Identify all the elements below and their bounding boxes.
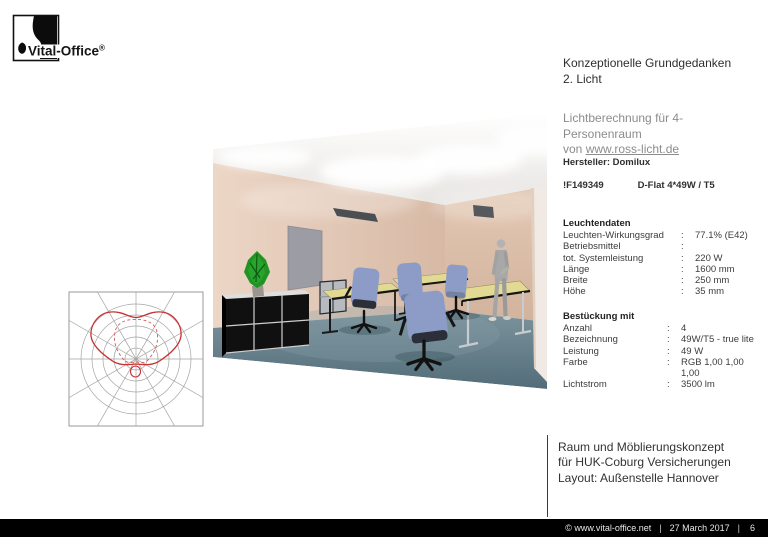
bar-separator: | <box>659 519 661 537</box>
spec-label: Farbe <box>563 357 667 368</box>
spec-value <box>695 241 768 252</box>
spec-colon: : <box>667 379 681 390</box>
ross-licht-link[interactable]: www.ross-licht.de <box>586 142 679 156</box>
spec-label: Länge <box>563 264 681 275</box>
table-row: tot. Systemleistung:220 W <box>563 253 768 264</box>
spec-label: Betriebsmittel <box>563 241 681 252</box>
page-title: Konzeptionelle Grundgedanken 2. Licht <box>563 56 758 87</box>
page-number: 6 <box>750 519 755 537</box>
product-info: Hersteller: Domilux !F149349 D-Flat 4*49… <box>563 157 763 191</box>
subtitle-line-1: Lichtberechnung für 4-Personenraum <box>563 111 758 142</box>
logo-wordmark: Vital-Office® <box>28 44 105 59</box>
spec-colon: : <box>667 334 681 345</box>
spec-colon: : <box>681 230 695 241</box>
spec-label <box>563 368 667 379</box>
table-row: 1,00 <box>563 368 768 379</box>
office-chair <box>444 264 468 299</box>
bottom-bar: © www.vital-office.net|27 March 2017|6 <box>0 519 768 537</box>
spec-label: Breite <box>563 275 681 286</box>
spec-colon: : <box>681 264 695 275</box>
spec-colon: : <box>667 346 681 357</box>
slide-page: Vital-Office® Konzeptionelle Grundgedank… <box>0 0 768 543</box>
title-line-1: Konzeptionelle Grundgedanken <box>563 56 758 72</box>
spec-value: 250 mm <box>695 275 768 286</box>
table-row: Leistung:49 W <box>563 346 768 357</box>
spec-colon: : <box>667 357 681 368</box>
table-row: Betriebsmittel: <box>563 241 768 252</box>
date-text: 27 March 2017 <box>670 523 730 533</box>
table-row: Breite:250 mm <box>563 275 768 286</box>
table-row: Lichtstrom:3500 lm <box>563 379 768 390</box>
logo-graphic: Vital-Office® <box>12 14 182 68</box>
polar-diagram <box>68 291 204 427</box>
wall-light-wash <box>240 182 420 218</box>
spec-label: Bezeichnung <box>563 334 667 345</box>
project-footer: Raum und Möblierungskonzept für HUK-Cobu… <box>558 440 758 486</box>
table-row: Bezeichnung:49W/T5 - true lite <box>563 334 768 345</box>
subtitle-line-2: von www.ross-licht.de <box>563 142 758 158</box>
footer-line-2: für HUK-Coburg Versicherungen <box>558 455 758 470</box>
spec-value: 3500 lm <box>681 379 768 390</box>
spec-value: RGB 1,00 1,00 <box>681 357 768 368</box>
table-row: Farbe:RGB 1,00 1,00 <box>563 357 768 368</box>
spec-colon: : <box>667 323 681 334</box>
spec-label: Anzahl <box>563 323 667 334</box>
title-line-2: 2. Licht <box>563 72 758 88</box>
spec-label: Leistung <box>563 346 667 357</box>
footer-line-1: Raum und Möblierungskonzept <box>558 440 758 455</box>
spec-colon: : <box>681 286 695 297</box>
spec-label: Lichtstrom <box>563 379 667 390</box>
spec-colon: : <box>681 275 695 286</box>
equipment-table: Bestückung mit Anzahl:4 Bezeichnung:49W/… <box>563 311 768 390</box>
spec-value: 4 <box>681 323 768 334</box>
product-code: !F149349 <box>563 180 635 191</box>
room-rendering <box>210 110 550 395</box>
section-heading: Leuchtendaten <box>563 218 768 229</box>
luminaire-data-table: Leuchtendaten Leuchten-Wirkungsgrad:77.1… <box>563 218 768 297</box>
footer-line-3: Layout: Außenstelle Hannover <box>558 471 758 486</box>
spec-colon <box>667 368 681 379</box>
spec-label: tot. Systemleistung <box>563 253 681 264</box>
spec-value: 35 mm <box>695 286 768 297</box>
spec-value: 1,00 <box>681 368 768 379</box>
spec-label: Leuchten-Wirkungsgrad <box>563 230 681 241</box>
manufacturer: Hersteller: Domilux <box>563 157 763 168</box>
wall-panel-right <box>473 205 494 218</box>
spec-label: Höhe <box>563 286 681 297</box>
spec-colon: : <box>681 253 695 264</box>
section-heading: Bestückung mit <box>563 311 768 322</box>
copyright-text: © www.vital-office.net <box>565 523 651 533</box>
product-line: !F149349 D-Flat 4*49W / T5 <box>563 180 763 191</box>
spec-value: 49 W <box>681 346 768 357</box>
spec-value: 77.1% (E42) <box>695 230 768 241</box>
vital-office-logo: Vital-Office® <box>12 14 182 68</box>
spec-value: 1600 mm <box>695 264 768 275</box>
subtitle: Lichtberechnung für 4-Personenraum von w… <box>563 111 758 158</box>
spec-value: 49W/T5 - true lite <box>681 334 768 345</box>
table-row: Leuchten-Wirkungsgrad:77.1% (E42) <box>563 230 768 241</box>
table-row: Länge:1600 mm <box>563 264 768 275</box>
table-row: Höhe:35 mm <box>563 286 768 297</box>
table-row: Anzahl:4 <box>563 323 768 334</box>
footer-divider <box>547 435 548 517</box>
door <box>288 226 322 290</box>
subtitle-prefix: von <box>563 142 586 156</box>
spec-colon: : <box>681 241 695 252</box>
product-model: D-Flat 4*49W / T5 <box>638 180 715 191</box>
spec-value: 220 W <box>695 253 768 264</box>
bar-separator: | <box>738 519 740 537</box>
